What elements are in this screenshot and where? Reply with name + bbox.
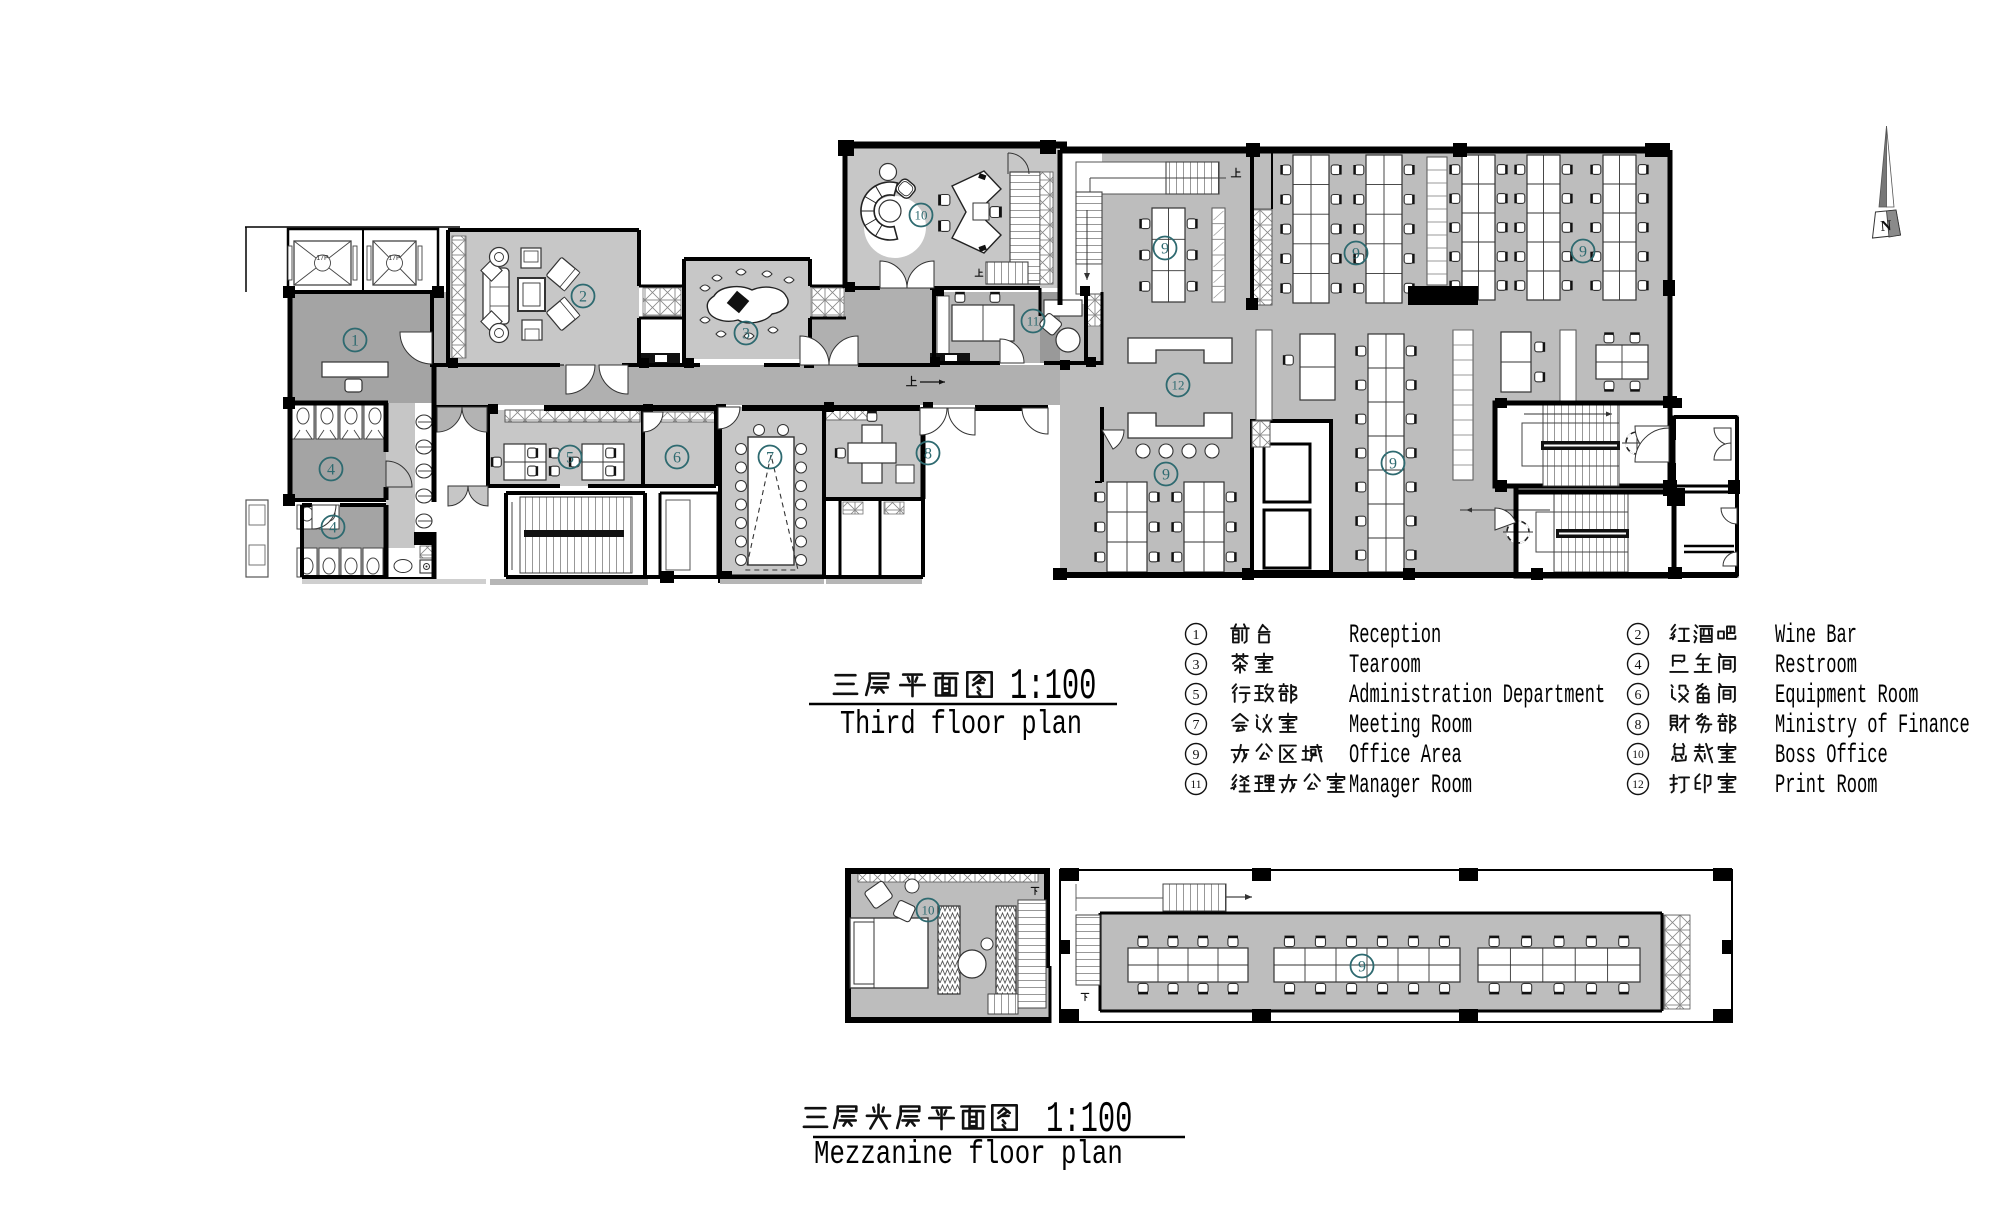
svg-text:10: 10 — [915, 207, 928, 222]
svg-text:3: 3 — [1193, 658, 1200, 673]
svg-text:9: 9 — [1358, 958, 1366, 975]
svg-text:2: 2 — [1635, 628, 1642, 643]
svg-text:Wine Bar: Wine Bar — [1775, 619, 1857, 650]
svg-text:1: 1 — [1193, 628, 1200, 643]
svg-text:17P: 17P — [316, 255, 329, 262]
svg-text:5: 5 — [1193, 688, 1200, 703]
svg-text:10: 10 — [1632, 749, 1644, 761]
svg-text:Third floor plan: Third floor plan — [840, 706, 1082, 743]
svg-text:9: 9 — [1162, 466, 1170, 483]
svg-text:Boss Office: Boss Office — [1775, 739, 1888, 770]
svg-text:12: 12 — [1632, 779, 1644, 791]
svg-text:3: 3 — [742, 325, 750, 342]
svg-text:11: 11 — [1190, 779, 1201, 791]
svg-text:5: 5 — [566, 449, 574, 466]
svg-text:7: 7 — [1193, 718, 1200, 733]
svg-text:9: 9 — [1389, 455, 1397, 472]
svg-text:6: 6 — [673, 449, 681, 466]
svg-text:17P: 17P — [388, 255, 401, 262]
svg-text:Reception: Reception — [1349, 619, 1441, 650]
svg-text:Meeting Room: Meeting Room — [1349, 709, 1472, 740]
svg-text:7: 7 — [766, 449, 774, 466]
svg-text:4: 4 — [1635, 658, 1642, 673]
svg-text:Equipment Room: Equipment Room — [1775, 679, 1918, 710]
svg-text:12: 12 — [1172, 377, 1185, 392]
svg-text:6: 6 — [1635, 688, 1642, 703]
svg-text:Administration Department: Administration Department — [1349, 679, 1605, 710]
svg-text:11: 11 — [1027, 313, 1040, 328]
svg-text:10: 10 — [922, 902, 935, 917]
svg-text:N: N — [1880, 218, 1892, 235]
svg-text:2: 2 — [579, 288, 587, 305]
svg-text:9: 9 — [1193, 748, 1200, 763]
svg-text:4: 4 — [327, 461, 335, 478]
svg-text:Ministry of Finance: Ministry of Finance — [1775, 709, 1970, 740]
svg-text:9: 9 — [1161, 240, 1169, 257]
svg-text:9: 9 — [1352, 245, 1360, 262]
svg-text:8: 8 — [924, 445, 932, 462]
svg-text:9: 9 — [1579, 243, 1587, 260]
svg-text:Restroom: Restroom — [1775, 649, 1857, 680]
svg-text:Print Room: Print Room — [1775, 769, 1877, 800]
svg-text:Manager Room: Manager Room — [1349, 769, 1472, 800]
svg-text:8: 8 — [1635, 718, 1642, 733]
svg-text:Tearoom: Tearoom — [1349, 649, 1421, 680]
svg-text:Office Area: Office Area — [1349, 739, 1462, 770]
svg-text:4: 4 — [329, 519, 337, 536]
svg-text:Mezzanine floor plan: Mezzanine floor plan — [814, 1135, 1123, 1173]
svg-text:1: 1 — [351, 332, 359, 349]
